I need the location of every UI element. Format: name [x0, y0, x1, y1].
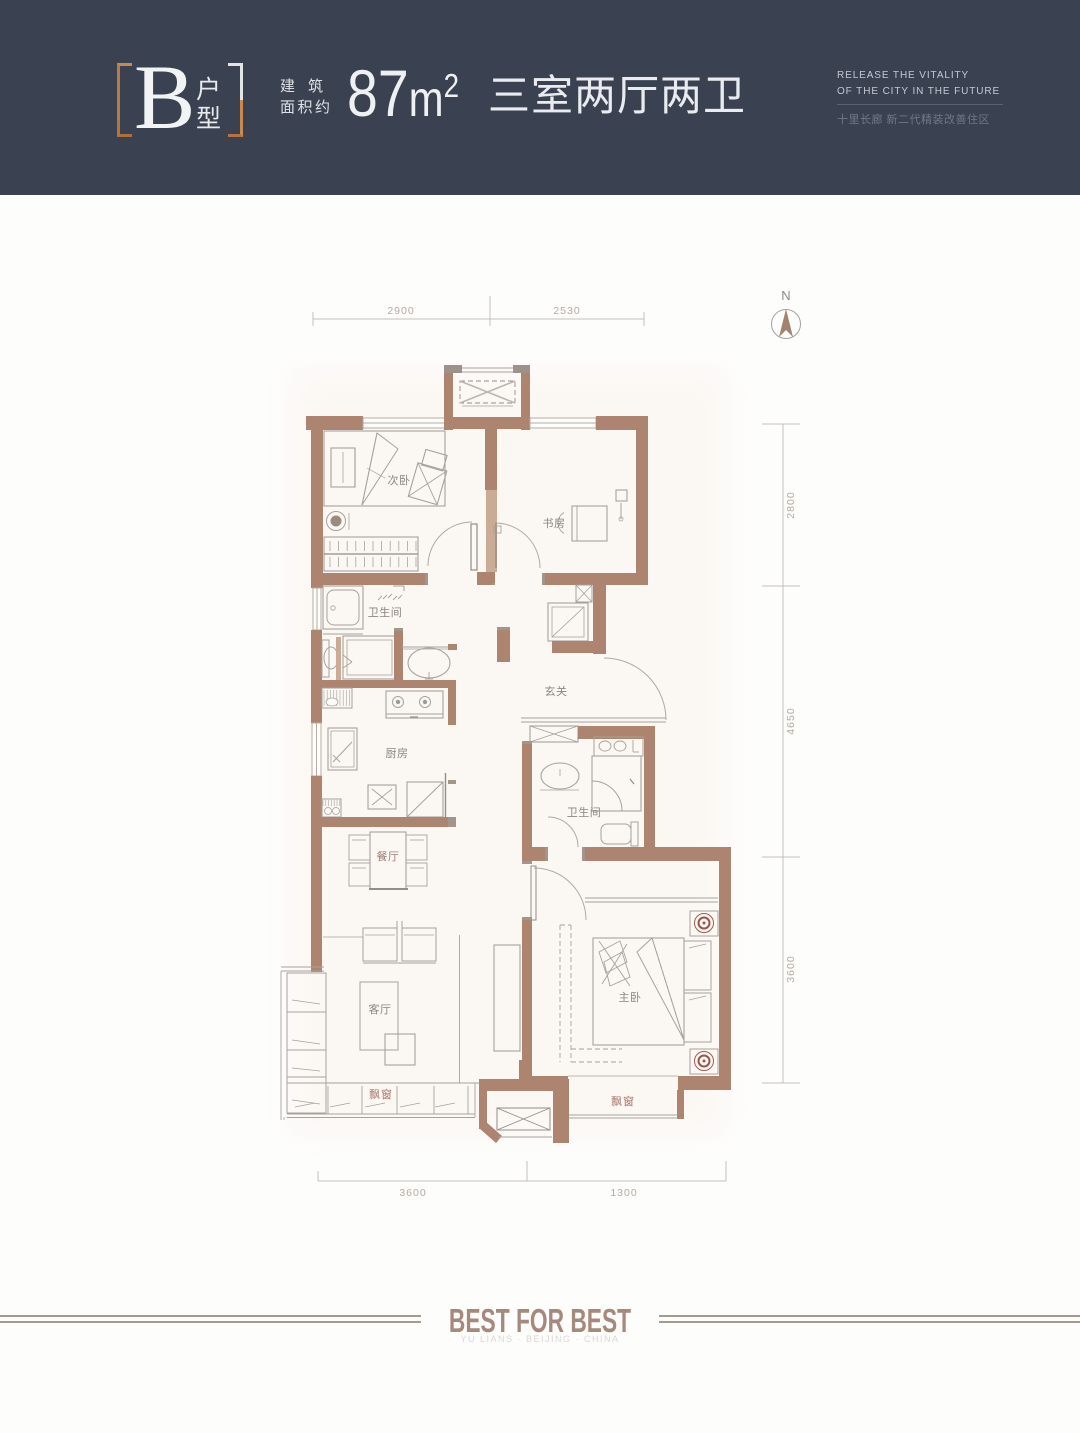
- svg-text:厨房: 厨房: [386, 747, 409, 760]
- svg-text:书房: 书房: [543, 517, 566, 530]
- svg-text:次卧: 次卧: [388, 473, 411, 487]
- svg-text:飘窗: 飘窗: [611, 1094, 635, 1108]
- svg-text:3600: 3600: [785, 955, 797, 982]
- svg-text:4650: 4650: [785, 707, 797, 734]
- svg-text:主卧: 主卧: [619, 991, 642, 1004]
- svg-text:卫生间: 卫生间: [567, 805, 602, 819]
- svg-text:餐厅: 餐厅: [377, 849, 400, 863]
- svg-text:3600: 3600: [399, 1187, 426, 1199]
- svg-text:飘窗: 飘窗: [369, 1087, 393, 1101]
- svg-text:卫生间: 卫生间: [368, 605, 403, 619]
- svg-text:2530: 2530: [553, 305, 580, 317]
- svg-text:2800: 2800: [785, 491, 797, 518]
- svg-text:N: N: [781, 288, 790, 303]
- svg-text:客厅: 客厅: [369, 1002, 392, 1016]
- svg-text:玄关: 玄关: [545, 684, 568, 698]
- svg-text:1300: 1300: [610, 1187, 637, 1199]
- svg-text:2900: 2900: [387, 305, 414, 317]
